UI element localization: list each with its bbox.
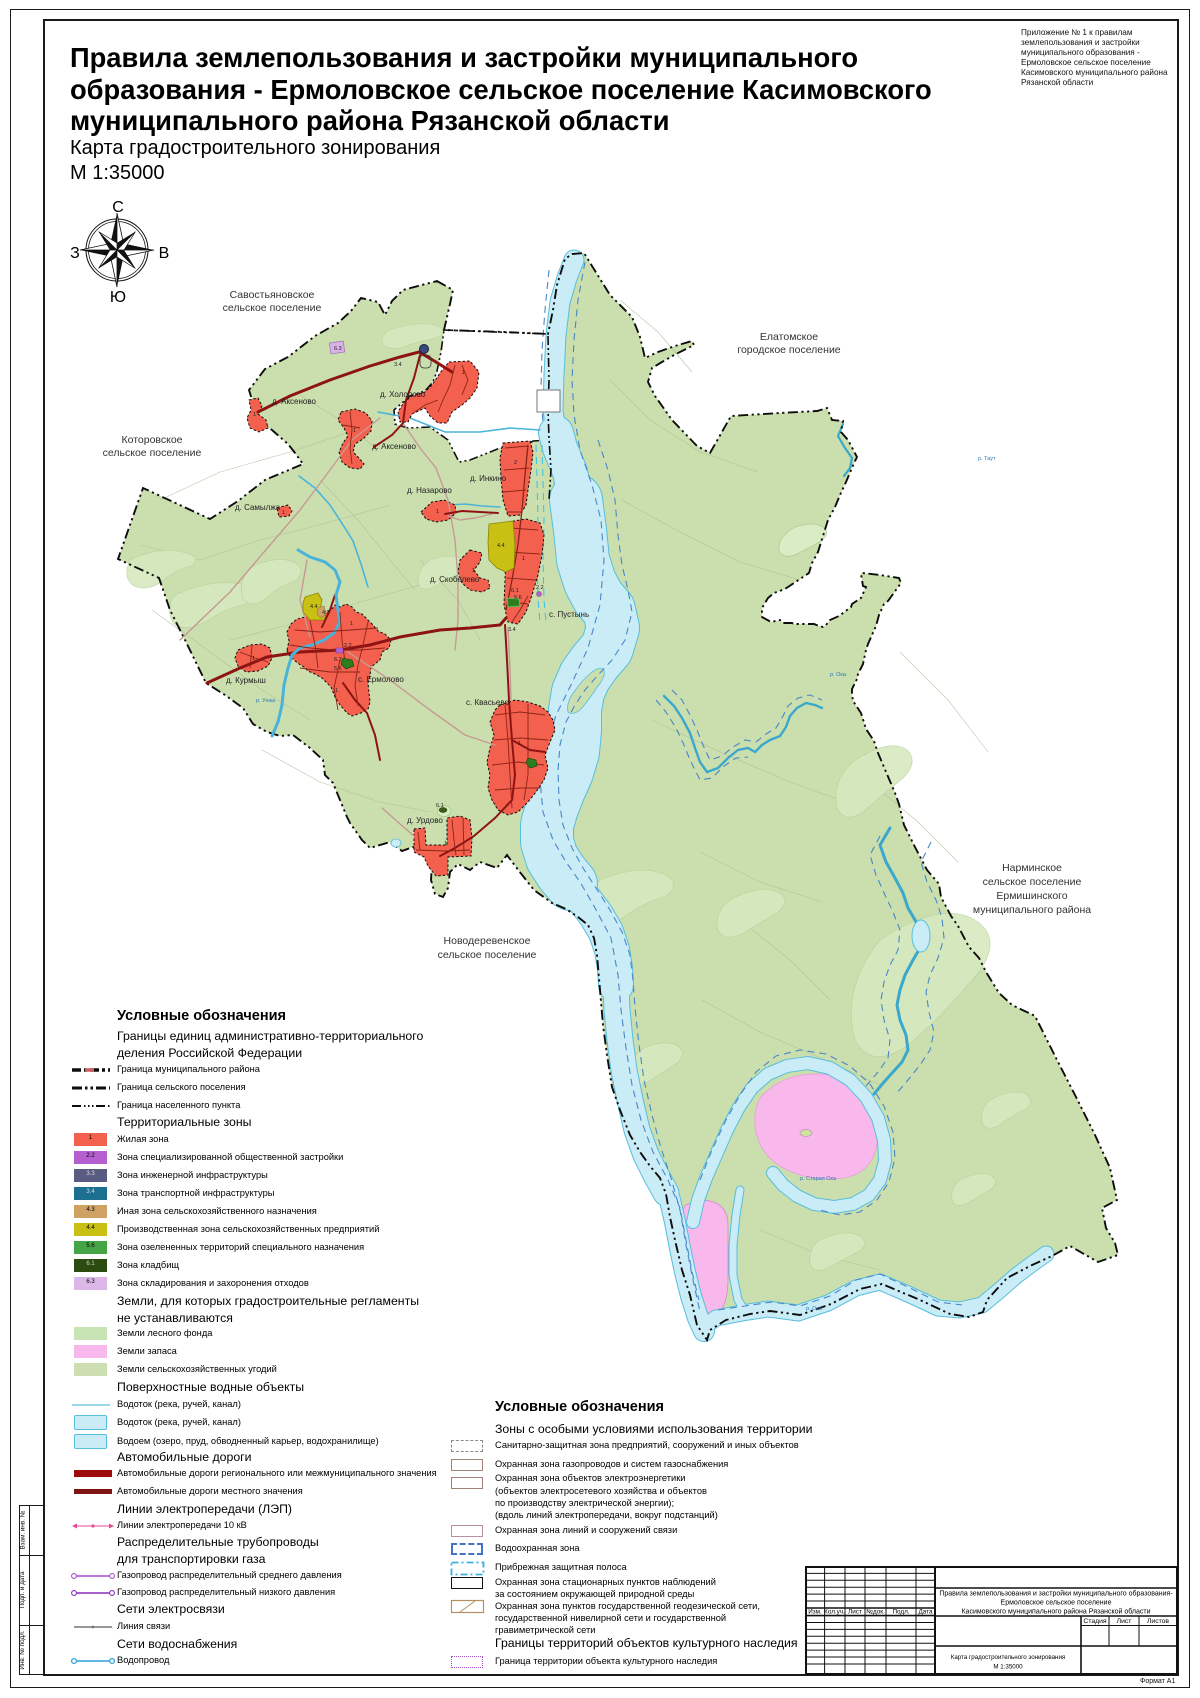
svg-text:1: 1	[462, 370, 465, 376]
svg-text:Касимовского муниципального ра: Касимовского муниципального района Рязан…	[961, 1608, 1150, 1616]
svg-text:Правила землепользования и зас: Правила землепользования и застройки мун…	[939, 1590, 1173, 1598]
svg-text:1: 1	[350, 621, 353, 627]
svg-text:Карта градостроительного зонир: Карта градостроительного зонирования	[951, 1654, 1066, 1661]
svg-text:д. Назарово: д. Назарово	[407, 486, 452, 495]
svg-text:р. Ока: р. Ока	[830, 672, 847, 678]
svg-text:№док.: №док.	[866, 1609, 885, 1616]
svg-text:6.3: 6.3	[334, 346, 342, 352]
svg-text:Ю: Ю	[110, 289, 126, 306]
svg-text:3.4: 3.4	[508, 627, 516, 633]
svg-text:Изм.: Изм.	[808, 1609, 822, 1616]
svg-text:сельское поселение: сельское поселение	[983, 876, 1082, 888]
svg-text:городское поселение: городское поселение	[737, 344, 840, 356]
svg-text:с. Ермолово: с. Ермолово	[358, 675, 404, 684]
svg-text:5.6: 5.6	[514, 595, 522, 601]
svg-text:1: 1	[518, 741, 521, 747]
svg-text:сельское поселение: сельское поселение	[103, 447, 202, 459]
svg-text:Ермоловское сельское поселение: Ермоловское сельское поселение	[1001, 1600, 1112, 1607]
svg-text:муниципального района: муниципального района	[973, 904, 1091, 916]
svg-text:сельское поселение: сельское поселение	[438, 949, 537, 961]
svg-text:р. Унжа: р. Унжа	[256, 698, 276, 704]
svg-text:4.4: 4.4	[310, 604, 318, 610]
svg-text:6.1: 6.1	[511, 588, 519, 594]
svg-text:с. Пустынь: с. Пустынь	[549, 610, 589, 619]
svg-text:Которовское: Которовское	[121, 434, 182, 446]
svg-text:2.2: 2.2	[344, 643, 352, 649]
svg-text:6.3: 6.3	[334, 657, 342, 663]
svg-text:Стадия: Стадия	[1083, 1618, 1106, 1625]
svg-text:д. Курмыш: д. Курмыш	[226, 676, 266, 685]
svg-text:Нарминское: Нарминское	[1002, 862, 1062, 874]
svg-text:Листов: Листов	[1147, 1618, 1169, 1625]
svg-text:С: С	[112, 199, 124, 216]
svg-text:д. Инкино: д. Инкино	[470, 474, 507, 483]
svg-text:Лист: Лист	[1117, 1618, 1132, 1625]
svg-text:р. Ока: р. Ока	[806, 1306, 823, 1312]
svg-text:Подл.: Подл.	[893, 1609, 910, 1616]
svg-text:д. Самылжа: д. Самылжа	[235, 503, 281, 512]
svg-text:Новодеревенское: Новодеревенское	[444, 935, 531, 947]
svg-text:д. Урдово: д. Урдово	[407, 816, 443, 825]
svg-text:5.6: 5.6	[334, 666, 342, 672]
svg-text:З: З	[70, 245, 80, 262]
svg-text:д. Аксеново: д. Аксеново	[272, 397, 317, 406]
svg-text:с. Квасьево: с. Квасьево	[466, 698, 509, 707]
svg-text:1: 1	[282, 510, 285, 516]
svg-text:2.2: 2.2	[536, 585, 544, 591]
svg-text:Ермишинского: Ермишинского	[996, 890, 1067, 902]
svg-text:Савостьяновское: Савостьяновское	[230, 289, 315, 301]
svg-text:р. Таут: р. Таут	[978, 456, 996, 462]
svg-text:Кол.уч.: Кол.уч.	[824, 1609, 845, 1616]
svg-text:1: 1	[252, 656, 255, 662]
svg-text:1: 1	[472, 568, 475, 574]
svg-text:д. Аксеново: д. Аксеново	[372, 442, 417, 451]
svg-text:1: 1	[253, 412, 256, 418]
svg-text:М 1:35000: М 1:35000	[993, 1664, 1023, 1671]
svg-text:1: 1	[444, 841, 447, 847]
svg-text:6.1: 6.1	[436, 803, 444, 809]
svg-text:4.3: 4.3	[322, 610, 330, 616]
svg-text:Лист: Лист	[848, 1609, 862, 1616]
svg-text:р. Старая Ока: р. Старая Ока	[800, 1176, 837, 1182]
svg-text:В: В	[159, 245, 170, 262]
svg-text:2: 2	[514, 460, 517, 466]
svg-text:Дата: Дата	[919, 1609, 933, 1616]
svg-text:1: 1	[436, 509, 439, 515]
svg-text:4.4: 4.4	[497, 543, 505, 549]
svg-text:Елатомское: Елатомское	[760, 331, 818, 343]
svg-text:1: 1	[353, 428, 356, 434]
svg-text:1: 1	[335, 688, 338, 694]
svg-text:3.4: 3.4	[394, 362, 402, 368]
svg-text:1: 1	[522, 556, 525, 562]
svg-text:сельское поселение: сельское поселение	[223, 302, 322, 314]
svg-text:д. Скобелево: д. Скобелево	[430, 575, 480, 584]
svg-text:д. Холопово: д. Холопово	[380, 390, 426, 399]
